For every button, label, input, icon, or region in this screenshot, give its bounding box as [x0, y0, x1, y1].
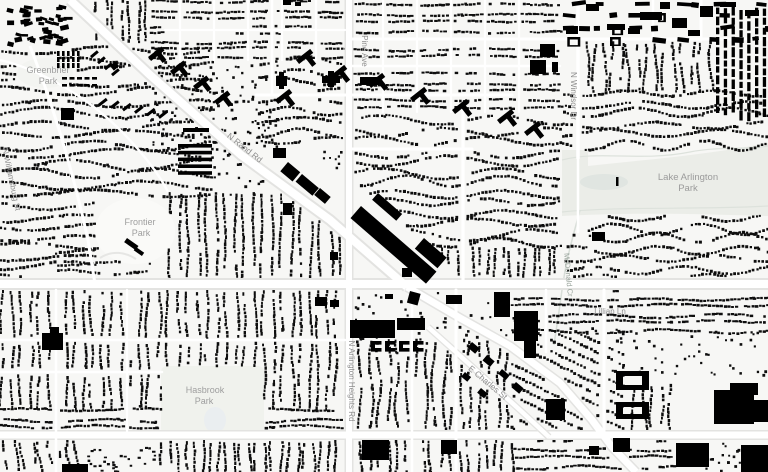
svg-text:Park: Park: [132, 228, 151, 238]
svg-text:Park: Park: [39, 76, 58, 86]
svg-text:Lake Arlington: Lake Arlington: [658, 172, 718, 183]
svg-text:Park: Park: [678, 183, 698, 194]
svg-text:Frontier: Frontier: [124, 217, 155, 227]
svg-text:Pine Ave: Pine Ave: [360, 35, 369, 67]
svg-text:Greenbrier: Greenbrier: [26, 65, 69, 75]
svg-text:N Arlington Heights Rd: N Arlington Heights Rd: [347, 341, 356, 422]
svg-text:Park: Park: [195, 396, 214, 406]
svg-text:N Windsor Dr: N Windsor Dr: [569, 72, 578, 120]
svg-text:Hasbrook: Hasbrook: [186, 385, 225, 395]
svg-text:Lillian Ln: Lillian Ln: [594, 307, 626, 316]
